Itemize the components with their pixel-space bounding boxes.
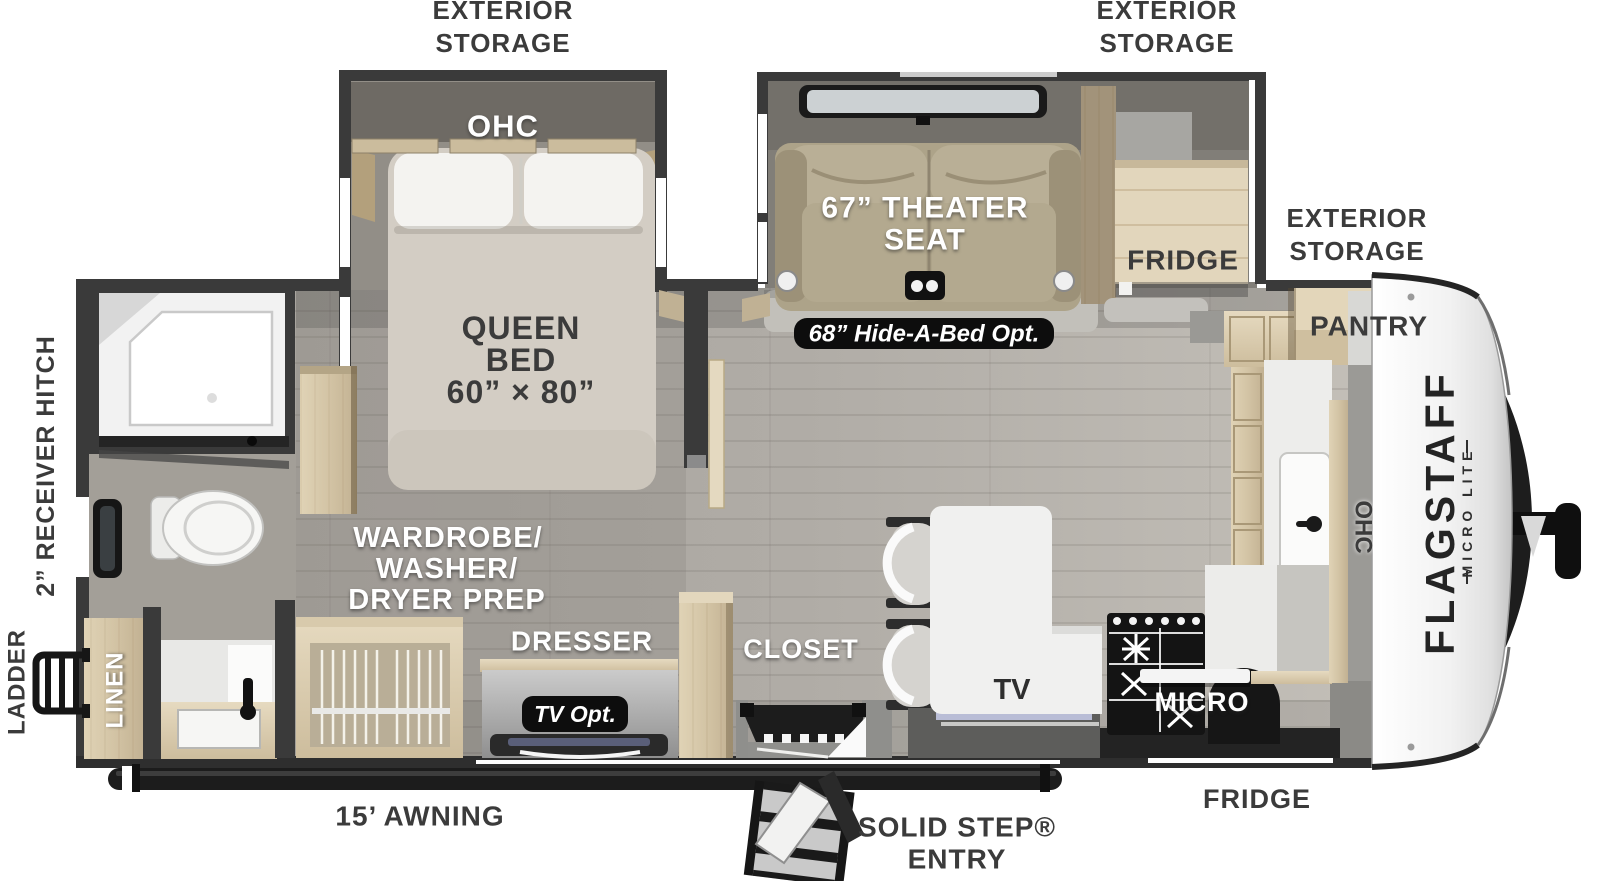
svg-text:WARDROBE/: WARDROBE/ xyxy=(353,522,542,554)
svg-text:FRIDGE: FRIDGE xyxy=(1127,245,1239,276)
svg-text:STORAGE: STORAGE xyxy=(1099,28,1234,58)
svg-text:60” × 80”: 60” × 80” xyxy=(447,374,596,410)
svg-text:TV Opt.: TV Opt. xyxy=(534,701,616,727)
svg-text:PANTRY: PANTRY xyxy=(1310,311,1428,342)
svg-text:EXTERIOR: EXTERIOR xyxy=(1287,203,1428,233)
svg-text:TV: TV xyxy=(993,674,1031,706)
svg-text:LINEN: LINEN xyxy=(102,652,129,729)
svg-text:OHC: OHC xyxy=(467,109,539,144)
svg-text:SEAT: SEAT xyxy=(884,224,966,257)
svg-text:2” RECEIVER HITCH: 2” RECEIVER HITCH xyxy=(32,335,60,596)
svg-text:OHC: OHC xyxy=(1350,500,1377,553)
svg-text:STORAGE: STORAGE xyxy=(435,28,570,58)
svg-text:QUEEN: QUEEN xyxy=(462,310,581,346)
svg-text:68” Hide-A-Bed Opt.: 68” Hide-A-Bed Opt. xyxy=(809,321,1040,348)
svg-text:BED: BED xyxy=(486,342,557,378)
svg-text:SOLID STEP®: SOLID STEP® xyxy=(858,812,1056,843)
svg-text:LADDER: LADDER xyxy=(4,629,31,735)
svg-text:ENTRY: ENTRY xyxy=(908,844,1007,875)
svg-text:EXTERIOR: EXTERIOR xyxy=(1097,0,1238,25)
svg-text:DRESSER: DRESSER xyxy=(511,626,653,657)
svg-text:STORAGE: STORAGE xyxy=(1289,236,1424,266)
svg-text:EXTERIOR: EXTERIOR xyxy=(433,0,574,25)
svg-text:15’ AWNING: 15’ AWNING xyxy=(335,801,504,832)
svg-text:67” THEATER: 67” THEATER xyxy=(821,192,1028,225)
svg-text:FLAGSTAFF: FLAGSTAFF xyxy=(1417,369,1463,655)
svg-text:CLOSET: CLOSET xyxy=(743,634,859,664)
svg-text:FRIDGE: FRIDGE xyxy=(1203,784,1311,814)
svg-text:DRYER PREP: DRYER PREP xyxy=(348,584,545,616)
svg-text:WASHER/: WASHER/ xyxy=(376,553,518,585)
svg-text:MICRO: MICRO xyxy=(1155,687,1250,717)
svg-text:MICRO LITE: MICRO LITE xyxy=(1459,447,1475,578)
